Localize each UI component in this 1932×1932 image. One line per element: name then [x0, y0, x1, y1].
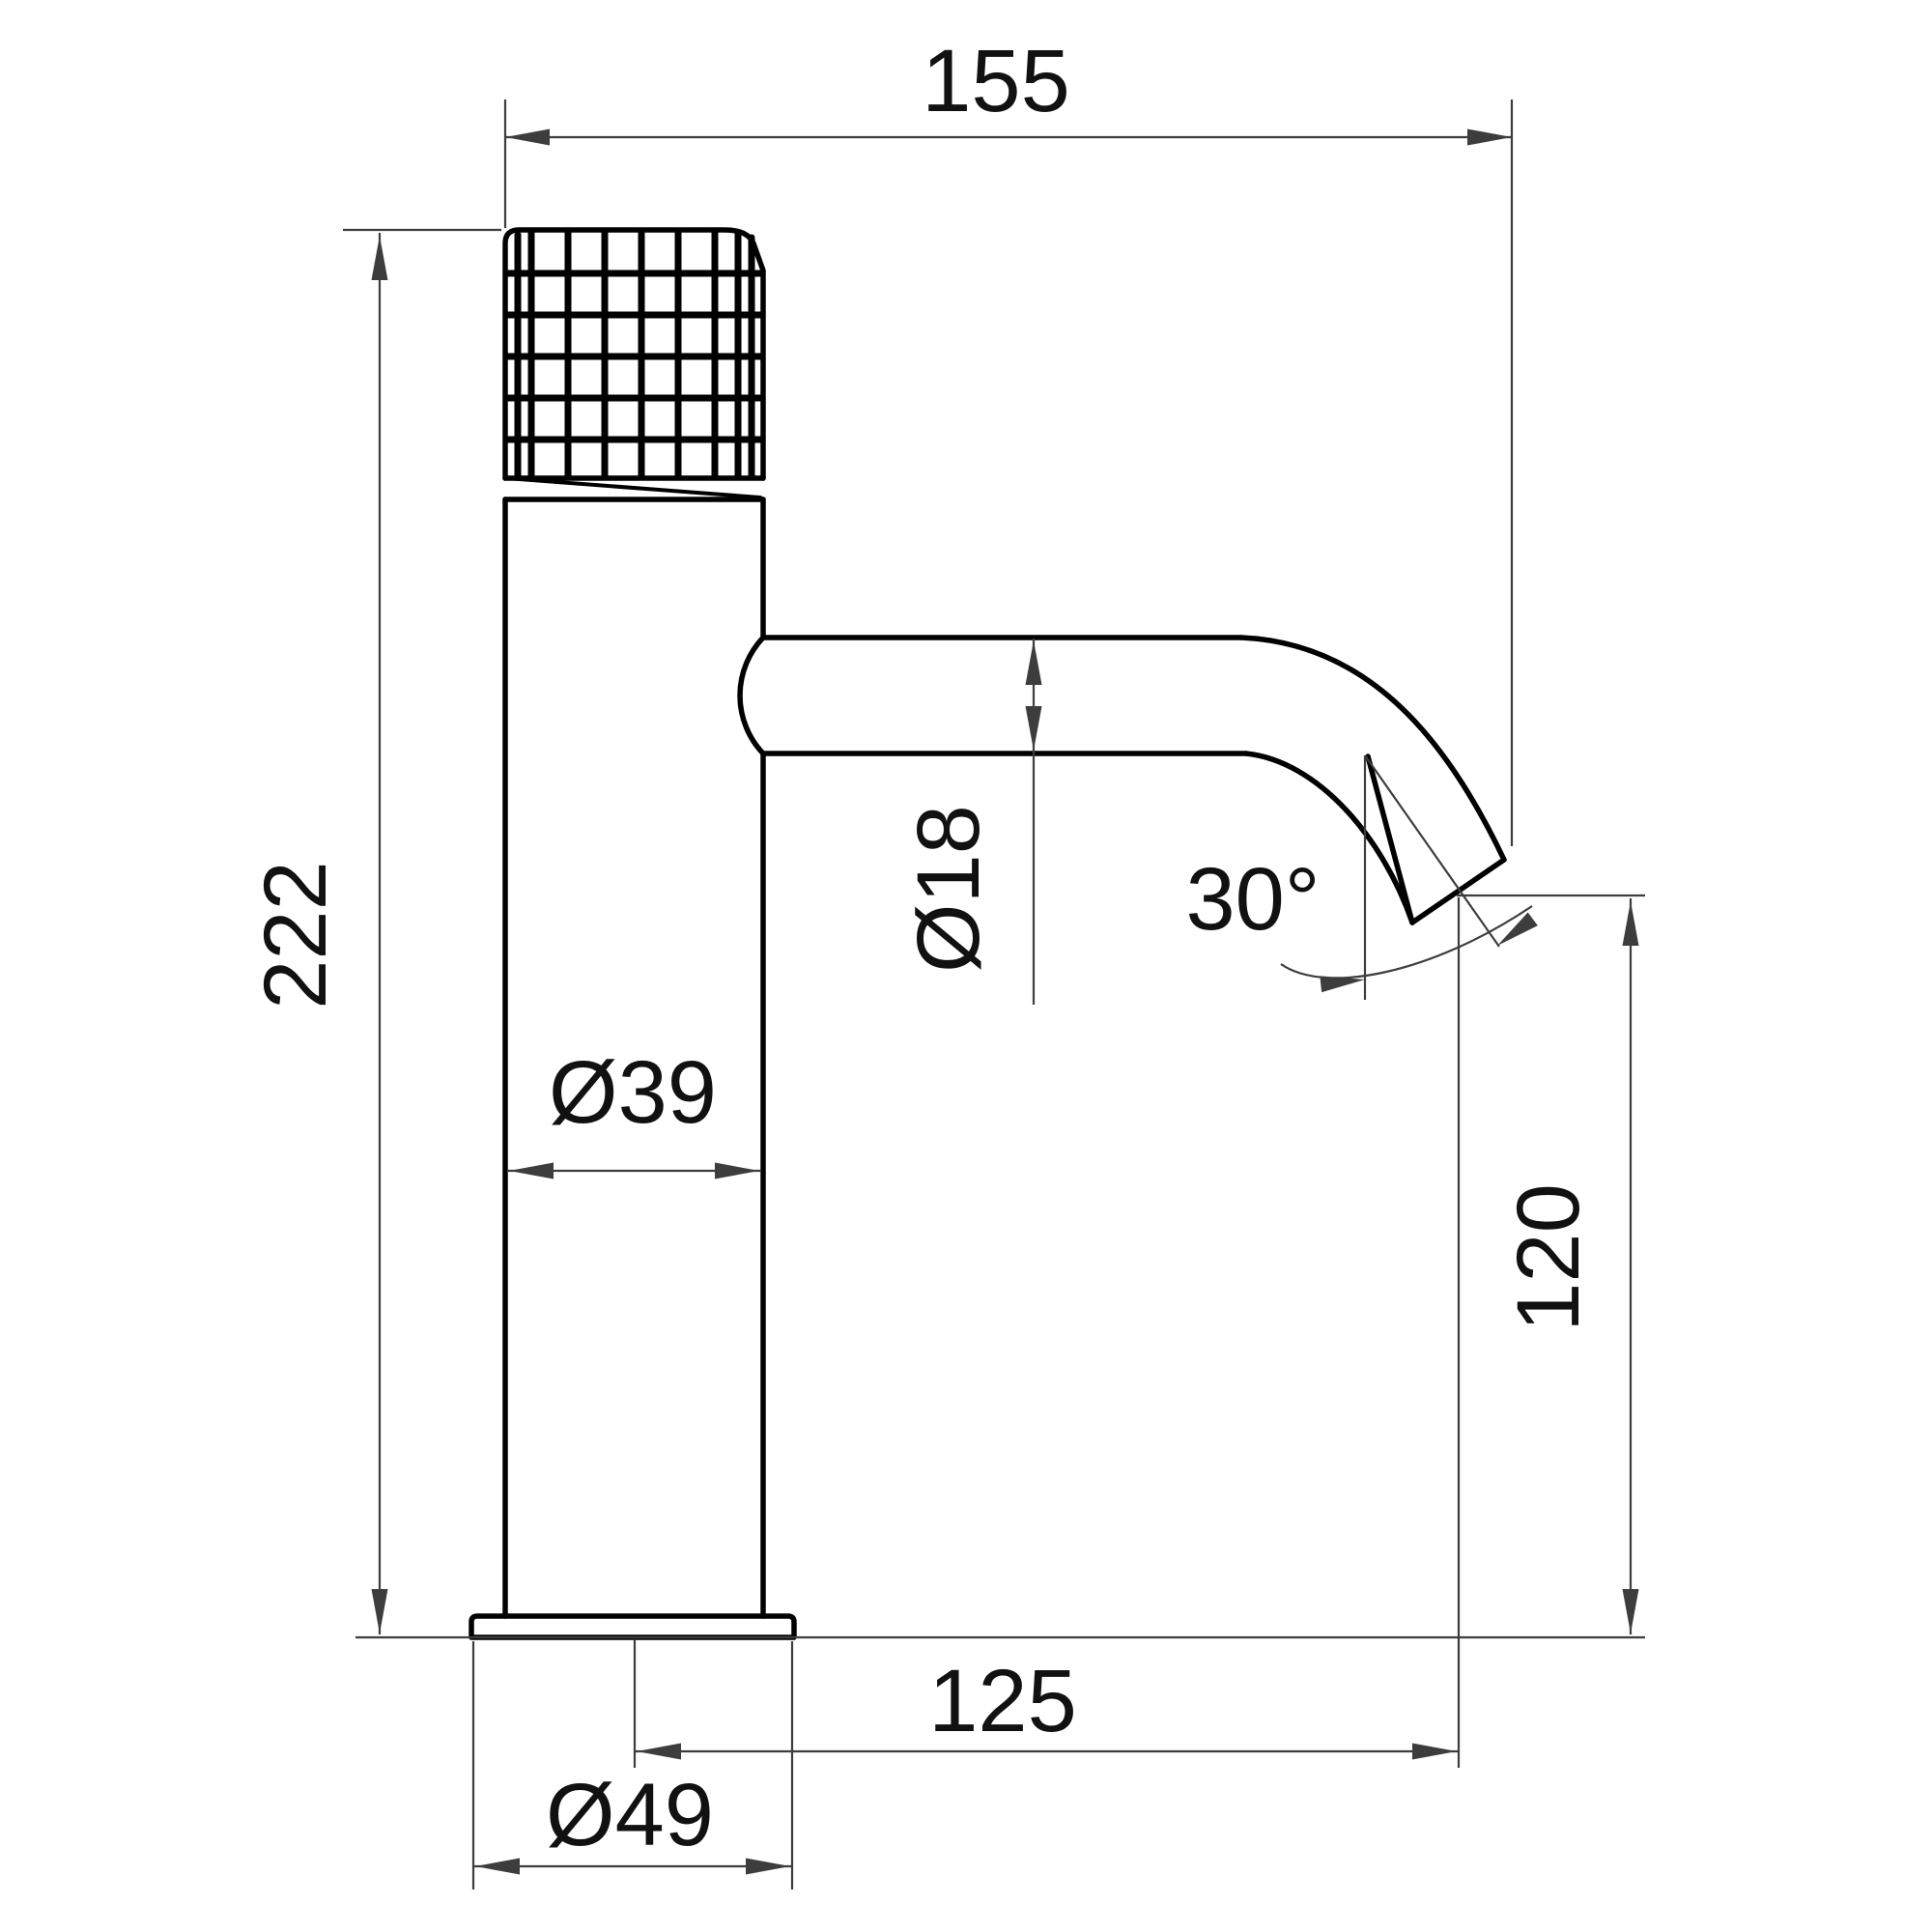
label-spout-diameter: Ø18: [899, 805, 998, 973]
spout-outlet-far-rim: [1368, 756, 1412, 923]
dimension-d39: [507, 1163, 761, 1179]
arrowhead-down: [1026, 706, 1042, 751]
dimension-labels: 155 222 Ø18 30° Ø39 120 125 Ø49: [246, 32, 1598, 1864]
label-body-diameter: Ø39: [549, 1043, 717, 1142]
handle-knurl: [505, 230, 763, 497]
dimension-155: [505, 99, 1512, 846]
arrowhead-right: [1412, 1744, 1457, 1760]
spout-root-cap-arc: [740, 638, 763, 753]
arrowhead-bottom: [372, 1589, 388, 1634]
arrowhead-left: [509, 1163, 554, 1179]
base-plate: [471, 1616, 794, 1637]
label-top-width: 155: [922, 32, 1070, 130]
dimension-222: [343, 230, 501, 1634]
label-total-height: 222: [246, 861, 345, 1009]
dimension-annotations: [343, 99, 1645, 1889]
arrowhead-right: [746, 1859, 790, 1875]
arrowhead-right: [1467, 129, 1512, 146]
arrowhead-bottom: [1623, 1589, 1639, 1634]
knurl-grid-horizontals: [506, 273, 762, 440]
label-outlet-height: 120: [1499, 1183, 1598, 1332]
handle-underside-wedge: [506, 478, 760, 497]
arrowhead-left: [475, 1859, 520, 1875]
spout-outer-bend: [1241, 638, 1504, 860]
label-base-diameter: Ø49: [546, 1766, 714, 1864]
arrowhead-top: [1623, 901, 1639, 946]
spout: [740, 638, 1504, 923]
arrowhead-left: [637, 1744, 681, 1760]
arrowhead-left: [505, 129, 550, 146]
angle-leg-diagonal: [1365, 755, 1499, 947]
dimension-d18: [1026, 639, 1042, 1005]
faucet-dimension-drawing: 155 222 Ø18 30° Ø39 120 125 Ø49: [0, 0, 1932, 1932]
arrowhead-top: [372, 236, 388, 280]
label-outlet-offset: 125: [928, 1652, 1077, 1750]
arrowhead-arc-left: [1320, 972, 1366, 993]
arrowhead-up: [1026, 640, 1042, 685]
arrowhead-right: [715, 1163, 759, 1179]
technical-drawing-page: 155 222 Ø18 30° Ø39 120 125 Ø49: [0, 0, 1932, 1932]
label-spout-angle: 30°: [1185, 850, 1320, 949]
